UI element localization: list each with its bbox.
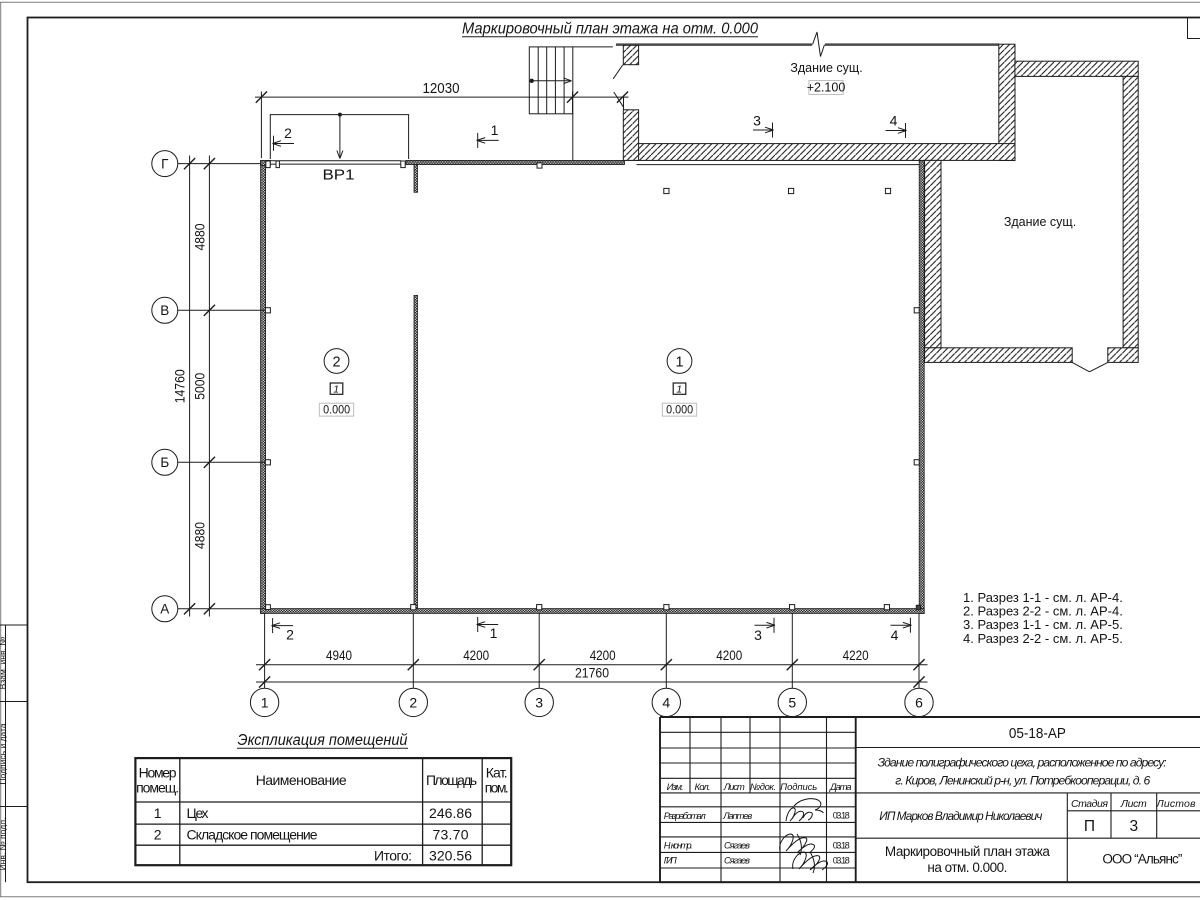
svg-text:03.18: 03.18 [833, 856, 850, 866]
svg-text:4200: 4200 [716, 647, 742, 663]
svg-text:1: 1 [676, 383, 682, 395]
svg-text:4880: 4880 [192, 522, 208, 549]
svg-text:1: 1 [333, 383, 339, 395]
svg-text:помещ.: помещ. [136, 780, 179, 796]
svg-text:14760: 14760 [172, 369, 188, 403]
svg-text:Подпись: Подпись [780, 782, 817, 793]
svg-text:Лист: Лист [1120, 798, 1147, 810]
svg-text:Сягаев: Сягаев [724, 840, 750, 850]
svg-text:Н. контр.: Н. контр. [664, 840, 693, 850]
svg-text:03.18: 03.18 [833, 811, 850, 821]
svg-text:0.000: 0.000 [323, 403, 350, 417]
svg-text:1: 1 [491, 122, 499, 138]
svg-text:Итого:: Итого: [374, 847, 412, 863]
svg-text:Лаптев: Лаптев [722, 811, 752, 821]
svg-text:2: 2 [409, 694, 417, 710]
svg-text:0.000: 0.000 [666, 403, 693, 417]
svg-text:+2.100: +2.100 [807, 81, 846, 95]
svg-text:4940: 4940 [326, 647, 352, 663]
svg-text:Листов: Листов [1156, 798, 1197, 810]
svg-text:В: В [160, 303, 169, 318]
svg-text:1: 1 [675, 354, 683, 370]
svg-text:ВР1: ВР1 [323, 167, 355, 184]
svg-text:Инв. № подл.: Инв. № подл. [0, 818, 8, 871]
svg-text:12030: 12030 [423, 81, 460, 97]
svg-text:Цех: Цех [187, 805, 209, 821]
svg-text:А: А [160, 602, 169, 617]
svg-text:4200: 4200 [590, 647, 616, 663]
svg-text:4: 4 [662, 694, 670, 710]
svg-text:3: 3 [1129, 818, 1138, 835]
svg-text:3: 3 [753, 113, 761, 129]
svg-text:г. Киров, Ленинский р-н, ул.: г. Киров, Ленинский р-н, ул. Потребкоопе… [895, 773, 1150, 787]
svg-text:4220: 4220 [843, 647, 869, 663]
svg-text:3: 3 [535, 694, 543, 710]
svg-text:Сягаев: Сягаев [724, 856, 750, 866]
svg-text:Разработал: Разработал [664, 811, 707, 821]
svg-text:Кол.: Кол. [695, 782, 711, 793]
svg-text:Маркировочный план этажа: Маркировочный план этажа [885, 844, 1050, 859]
svg-text:5: 5 [788, 694, 796, 710]
svg-text:1: 1 [261, 694, 269, 710]
svg-text:6: 6 [915, 694, 923, 710]
svg-text:Стадия: Стадия [1071, 798, 1108, 810]
svg-text:05-18-АР: 05-18-АР [1009, 725, 1066, 742]
svg-text:21760: 21760 [575, 665, 609, 681]
svg-text:2: 2 [284, 125, 292, 141]
svg-text:246.86: 246.86 [429, 805, 472, 821]
svg-text:Изм.: Изм. [667, 782, 684, 793]
svg-text:2: 2 [286, 627, 294, 643]
svg-text:Дата: Дата [829, 782, 852, 793]
svg-text:Здание сущ.: Здание сущ. [1004, 215, 1076, 229]
svg-text:П: П [1084, 818, 1095, 835]
svg-text:1: 1 [154, 805, 162, 821]
svg-text:3: 3 [754, 627, 762, 643]
svg-text:ГИП: ГИП [664, 856, 677, 866]
svg-text:03.18: 03.18 [833, 840, 850, 850]
svg-text:5000: 5000 [192, 373, 208, 400]
svg-text:№док.: №док. [750, 782, 776, 793]
svg-text:4880: 4880 [192, 223, 208, 250]
svg-text:Складское помещение: Складское помещение [187, 826, 318, 842]
svg-text:2: 2 [154, 826, 162, 842]
svg-text:пом.: пом. [485, 780, 509, 796]
svg-text:2: 2 [332, 354, 340, 370]
svg-text:Б: Б [160, 455, 169, 470]
svg-text:Экспликация помещений: Экспликация помещений [238, 732, 408, 749]
svg-text:Взам. инв. №: Взам. инв. № [0, 637, 8, 690]
svg-text:Г: Г [161, 156, 169, 171]
svg-text:Здание полиграфического цеха,: Здание полиграфического цеха, расположен… [878, 755, 1167, 769]
svg-text:Кат.: Кат. [486, 765, 508, 781]
svg-text:1: 1 [490, 625, 498, 641]
svg-text:ИП Марков Владимир Николаевич: ИП Марков Владимир Николаевич [879, 809, 1042, 823]
svg-text:Площадь: Площадь [426, 772, 477, 788]
svg-text:320.56: 320.56 [429, 847, 472, 863]
svg-text:4200: 4200 [463, 647, 489, 663]
svg-text:Наименование: Наименование [256, 772, 347, 788]
svg-text:Номер: Номер [139, 765, 177, 781]
svg-text:4: 4 [891, 627, 899, 643]
svg-text:Здание сущ.: Здание сущ. [790, 61, 862, 75]
svg-text:на отм. 0.000.: на отм. 0.000. [927, 860, 1007, 875]
svg-text:Подпись и дата: Подпись и дата [0, 723, 8, 784]
svg-text:4: 4 [890, 112, 898, 128]
svg-text:4. Разрез 2-2 - см. л. АР-5.: 4. Разрез 2-2 - см. л. АР-5. [963, 631, 1123, 646]
svg-text:ООО “Альянс”: ООО “Альянс” [1102, 852, 1182, 867]
svg-text:73.70: 73.70 [433, 826, 469, 842]
svg-text:Лист: Лист [723, 782, 745, 793]
svg-text:Маркировочный план этажа на от: Маркировочный план этажа на отм. 0.000 [462, 21, 758, 38]
